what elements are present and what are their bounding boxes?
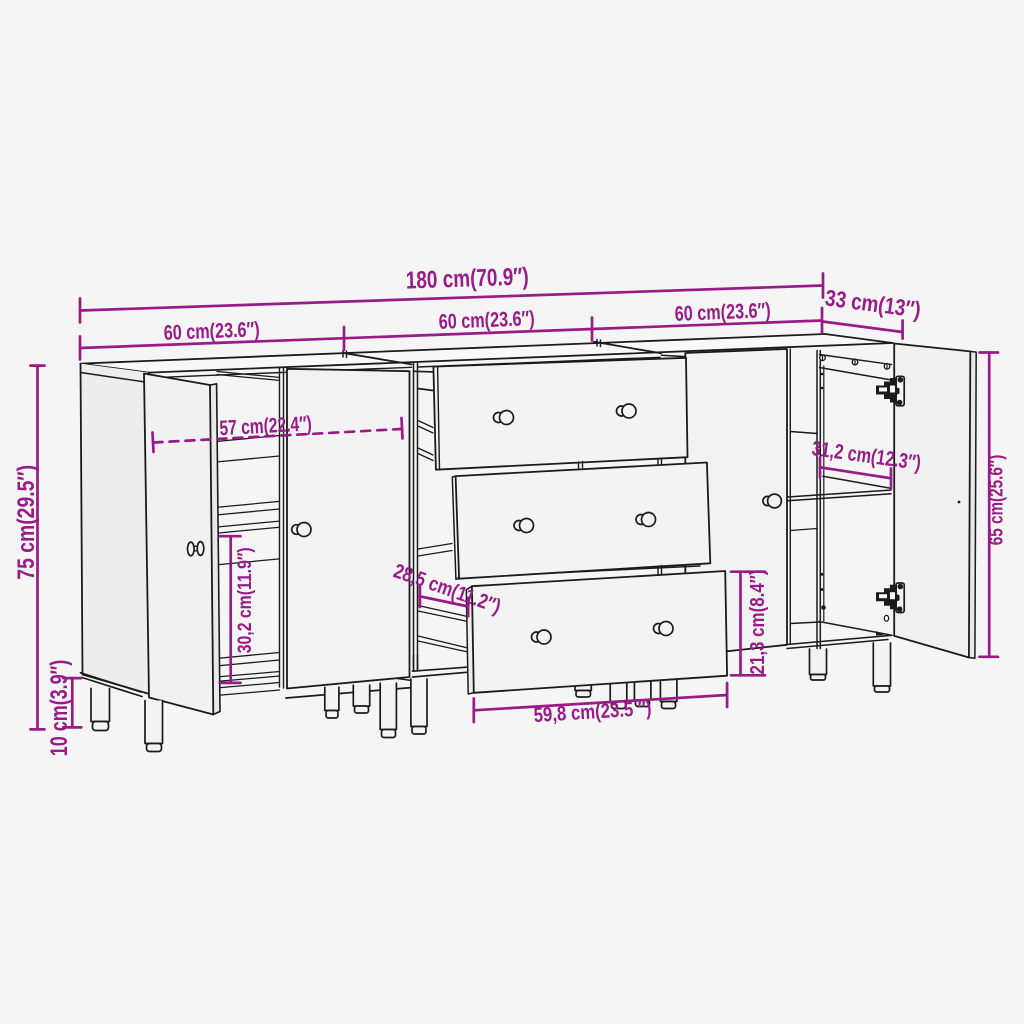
svg-text:75 cm(29.5″): 75 cm(29.5″) bbox=[12, 465, 40, 580]
svg-text:10 cm(3.9″): 10 cm(3.9″) bbox=[47, 660, 73, 756]
svg-text:59,8 cm(23.5 ″): 59,8 cm(23.5 ″) bbox=[533, 696, 652, 726]
svg-text:33 cm(13″): 33 cm(13″) bbox=[824, 286, 922, 323]
svg-text:180 cm(70.9″): 180 cm(70.9″) bbox=[405, 262, 529, 294]
svg-text:57 cm(22.4″): 57 cm(22.4″) bbox=[219, 411, 312, 440]
svg-text:65 cm(25.6″): 65 cm(25.6″) bbox=[985, 455, 1007, 546]
svg-text:60 cm(23.6″): 60 cm(23.6″) bbox=[674, 298, 771, 325]
svg-text:60 cm(23.6″): 60 cm(23.6″) bbox=[438, 306, 535, 333]
svg-text:30,2 cm(11.9″): 30,2 cm(11.9″) bbox=[234, 547, 256, 653]
svg-text:21,3 cm(8.4″): 21,3 cm(8.4″) bbox=[746, 570, 769, 675]
svg-text:60 cm(23.6″): 60 cm(23.6″) bbox=[163, 317, 260, 344]
